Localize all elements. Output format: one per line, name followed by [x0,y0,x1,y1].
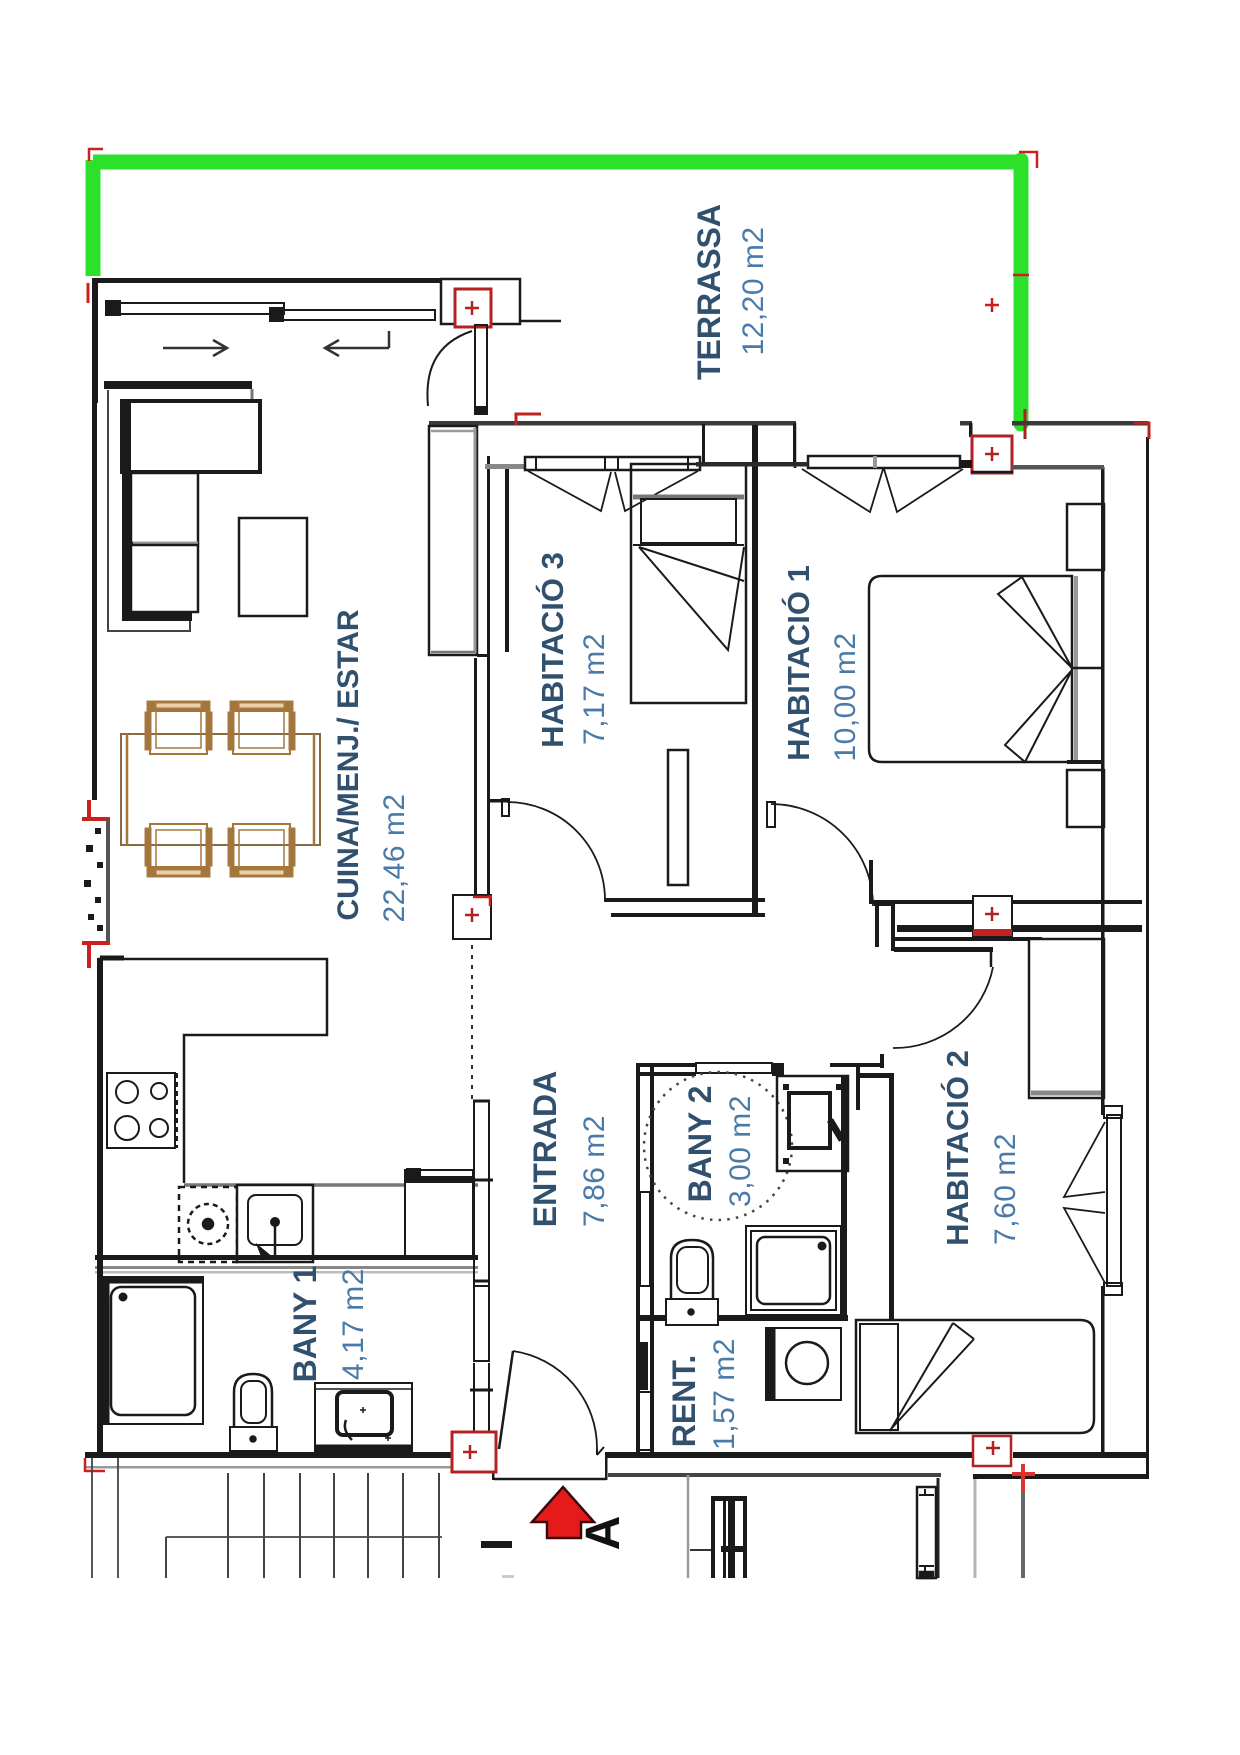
svg-text:TERRASSA: TERRASSA [691,204,727,380]
svg-text:7,60 m2: 7,60 m2 [989,1133,1022,1245]
svg-text:10,00 m2: 10,00 m2 [829,632,862,761]
svg-text:12,20 m2: 12,20 m2 [737,226,770,355]
svg-text:A: A [577,1516,630,1551]
svg-text:HABITACIÓ 1: HABITACIÓ 1 [780,565,816,761]
svg-text:HABITACIÓ 2: HABITACIÓ 2 [939,1050,975,1246]
svg-text:1,57 m2: 1,57 m2 [708,1338,741,1450]
svg-text:22,46 m2: 22,46 m2 [378,793,411,922]
svg-text:7,17 m2: 7,17 m2 [578,633,611,745]
svg-text:4,17 m2: 4,17 m2 [337,1268,370,1380]
svg-text:3,00 m2: 3,00 m2 [724,1095,757,1207]
svg-text:7,86 m2: 7,86 m2 [578,1115,611,1227]
svg-text:BANY 1: BANY 1 [287,1266,323,1383]
svg-text:BANY 2: BANY 2 [682,1086,718,1203]
svg-text:ENTRADA: ENTRADA [527,1071,563,1227]
svg-text:RENT.: RENT. [666,1355,702,1447]
svg-text:HABITACIÓ 3: HABITACIÓ 3 [534,552,570,748]
svg-text:CUINA/MENJ./ ESTAR: CUINA/MENJ./ ESTAR [332,609,365,920]
